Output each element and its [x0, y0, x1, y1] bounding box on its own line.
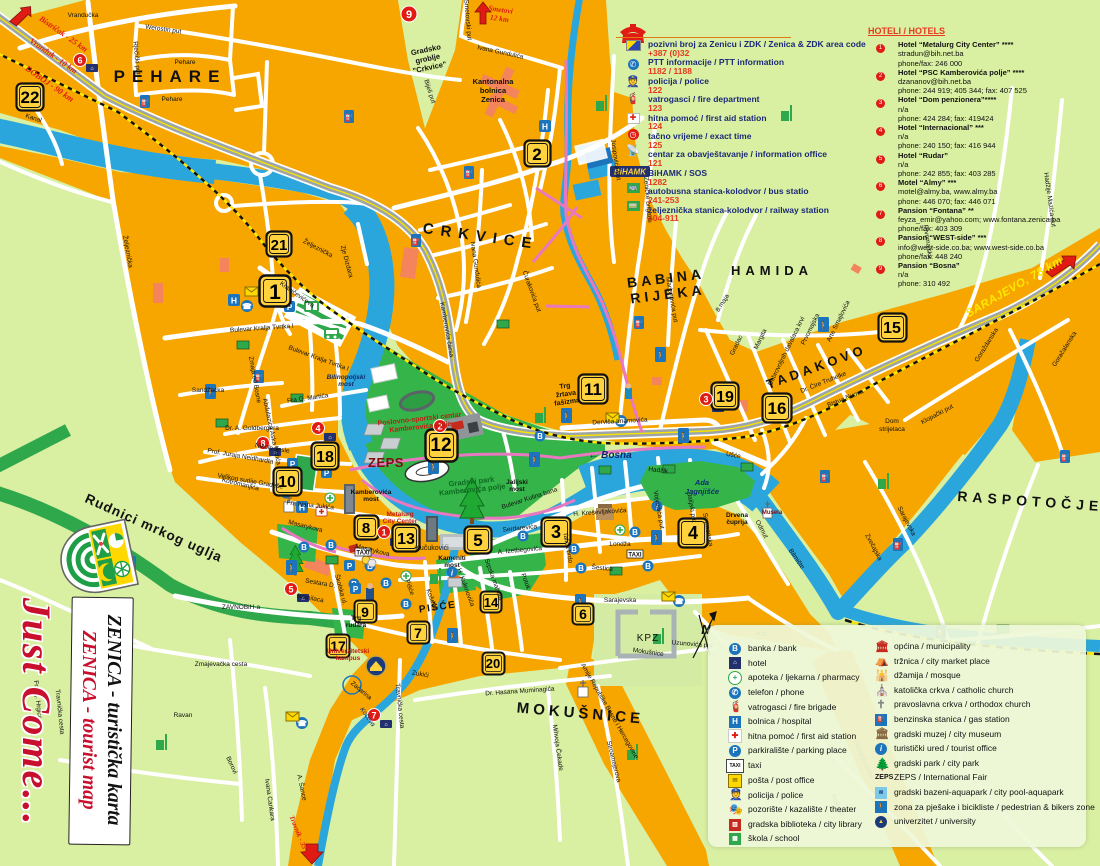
svg-text:rudara: rudara — [346, 622, 367, 629]
svg-text:B: B — [328, 541, 334, 550]
svg-text:B: B — [520, 532, 526, 541]
svg-text:kampus: kampus — [336, 655, 361, 662]
svg-text:H: H — [542, 122, 548, 132]
svg-text:Pehare: Pehare — [162, 96, 183, 103]
svg-text:PEHARE: PEHARE — [114, 67, 227, 86]
svg-text:Zenica: Zenica — [481, 95, 506, 104]
svg-text:⛽: ⛽ — [894, 541, 903, 550]
svg-text:Kameniti: Kameniti — [438, 555, 466, 562]
svg-text:Vrandučka: Vrandučka — [68, 12, 99, 19]
svg-text:9: 9 — [406, 9, 412, 21]
svg-text:P: P — [353, 585, 359, 594]
svg-text:9: 9 — [361, 604, 369, 620]
svg-text:🚶: 🚶 — [562, 411, 572, 421]
svg-text:B: B — [403, 600, 409, 609]
svg-text:H: H — [231, 296, 237, 306]
svg-text:🚶: 🚶 — [530, 455, 540, 465]
svg-text:Dom: Dom — [885, 418, 899, 425]
svg-text:Drvena: Drvena — [726, 512, 748, 519]
svg-text:Sandžačka: Sandžačka — [192, 387, 225, 394]
svg-text:22: 22 — [21, 88, 40, 107]
svg-text:🚶: 🚶 — [679, 431, 689, 441]
svg-text:Univerzitetski: Univerzitetski — [327, 648, 369, 655]
svg-text:21: 21 — [271, 237, 288, 254]
svg-text:☎: ☎ — [242, 302, 252, 311]
svg-text:← Bosna: ← Bosna — [588, 450, 632, 461]
svg-text:most: most — [509, 486, 525, 493]
svg-text:B: B — [632, 528, 638, 537]
svg-text:Metalurg: Metalurg — [386, 511, 413, 518]
svg-text:16: 16 — [768, 399, 787, 418]
svg-text:B: B — [578, 564, 584, 573]
svg-text:19: 19 — [716, 389, 734, 406]
svg-text:HAMIDA: HAMIDA — [731, 263, 813, 278]
svg-text:12: 12 — [430, 435, 451, 456]
svg-text:6: 6 — [77, 56, 82, 66]
svg-text:8: 8 — [362, 520, 370, 537]
svg-text:11: 11 — [584, 380, 602, 399]
svg-text:Sarajevska: Sarajevska — [604, 597, 637, 604]
svg-text:🚶: 🚶 — [656, 350, 666, 360]
svg-text:5: 5 — [473, 531, 482, 550]
svg-text:⌂: ⌂ — [384, 722, 387, 728]
svg-text:20: 20 — [486, 656, 500, 671]
svg-text:Musela: Musela — [762, 510, 783, 516]
svg-text:🚶: 🚶 — [652, 533, 662, 543]
svg-text:ZAVNOBiH-a: ZAVNOBiH-a — [222, 604, 261, 611]
svg-text:3: 3 — [551, 522, 561, 542]
svg-text:P: P — [347, 562, 353, 571]
svg-text:Zmajevačka cesta: Zmajevačka cesta — [195, 661, 248, 668]
svg-text:1: 1 — [381, 528, 386, 538]
svg-text:strijelaca: strijelaca — [879, 426, 905, 433]
svg-text:15: 15 — [883, 320, 901, 337]
svg-text:Trg: Trg — [351, 615, 361, 622]
svg-text:3: 3 — [703, 395, 708, 405]
svg-text:B: B — [537, 432, 543, 441]
svg-text:⌂: ⌂ — [328, 435, 331, 441]
svg-text:🚶: 🚶 — [429, 462, 439, 472]
svg-text:Jalijski: Jalijski — [506, 479, 528, 486]
svg-text:B: B — [383, 579, 389, 588]
svg-text:City Center: City Center — [383, 518, 418, 525]
svg-text:B: B — [645, 562, 651, 571]
svg-text:18: 18 — [316, 449, 334, 466]
svg-text:Ada: Ada — [694, 478, 709, 487]
svg-text:KPZ: KPZ — [637, 633, 659, 644]
svg-text:Pehare: Pehare — [175, 59, 196, 66]
svg-text:⌂: ⌂ — [90, 66, 93, 72]
svg-text:⛽: ⛽ — [141, 98, 150, 107]
svg-text:7: 7 — [414, 625, 422, 641]
svg-text:4: 4 — [688, 523, 698, 543]
svg-text:☎: ☎ — [674, 597, 684, 606]
svg-text:B: B — [301, 543, 307, 552]
svg-text:Bilinopoljski: Bilinopoljski — [327, 374, 366, 381]
svg-text:Kamberovića: Kamberovića — [351, 489, 392, 496]
svg-text:⛽: ⛽ — [1061, 453, 1070, 462]
svg-text:2: 2 — [532, 145, 541, 164]
svg-text:🚶: 🚶 — [287, 563, 297, 573]
svg-text:bolnica: bolnica — [480, 86, 507, 95]
svg-text:13: 13 — [397, 531, 415, 548]
svg-text:🚶: 🚶 — [819, 320, 829, 330]
svg-text:⛽: ⛽ — [345, 113, 354, 122]
svg-text:Ravan: Ravan — [174, 712, 193, 719]
svg-text:⛽: ⛽ — [821, 473, 830, 482]
svg-text:⛽: ⛽ — [412, 237, 421, 246]
svg-text:TAXI: TAXI — [628, 553, 642, 559]
svg-text:🚶: 🚶 — [448, 631, 458, 641]
svg-text:⛽: ⛽ — [465, 169, 474, 178]
svg-text:Kantonalna: Kantonalna — [473, 77, 515, 86]
svg-text:4: 4 — [315, 424, 320, 434]
svg-text:most: most — [363, 496, 379, 503]
svg-text:Londža: Londža — [609, 541, 631, 548]
svg-text:čuprija: čuprija — [726, 519, 748, 526]
svg-text:Kučukovići: Kučukovići — [415, 545, 449, 552]
svg-text:most: most — [338, 381, 354, 388]
svg-text:⛽: ⛽ — [635, 319, 644, 328]
svg-text:5: 5 — [288, 585, 293, 595]
svg-text:ZEPS: ZEPS — [368, 455, 404, 470]
svg-text:6: 6 — [579, 606, 587, 622]
